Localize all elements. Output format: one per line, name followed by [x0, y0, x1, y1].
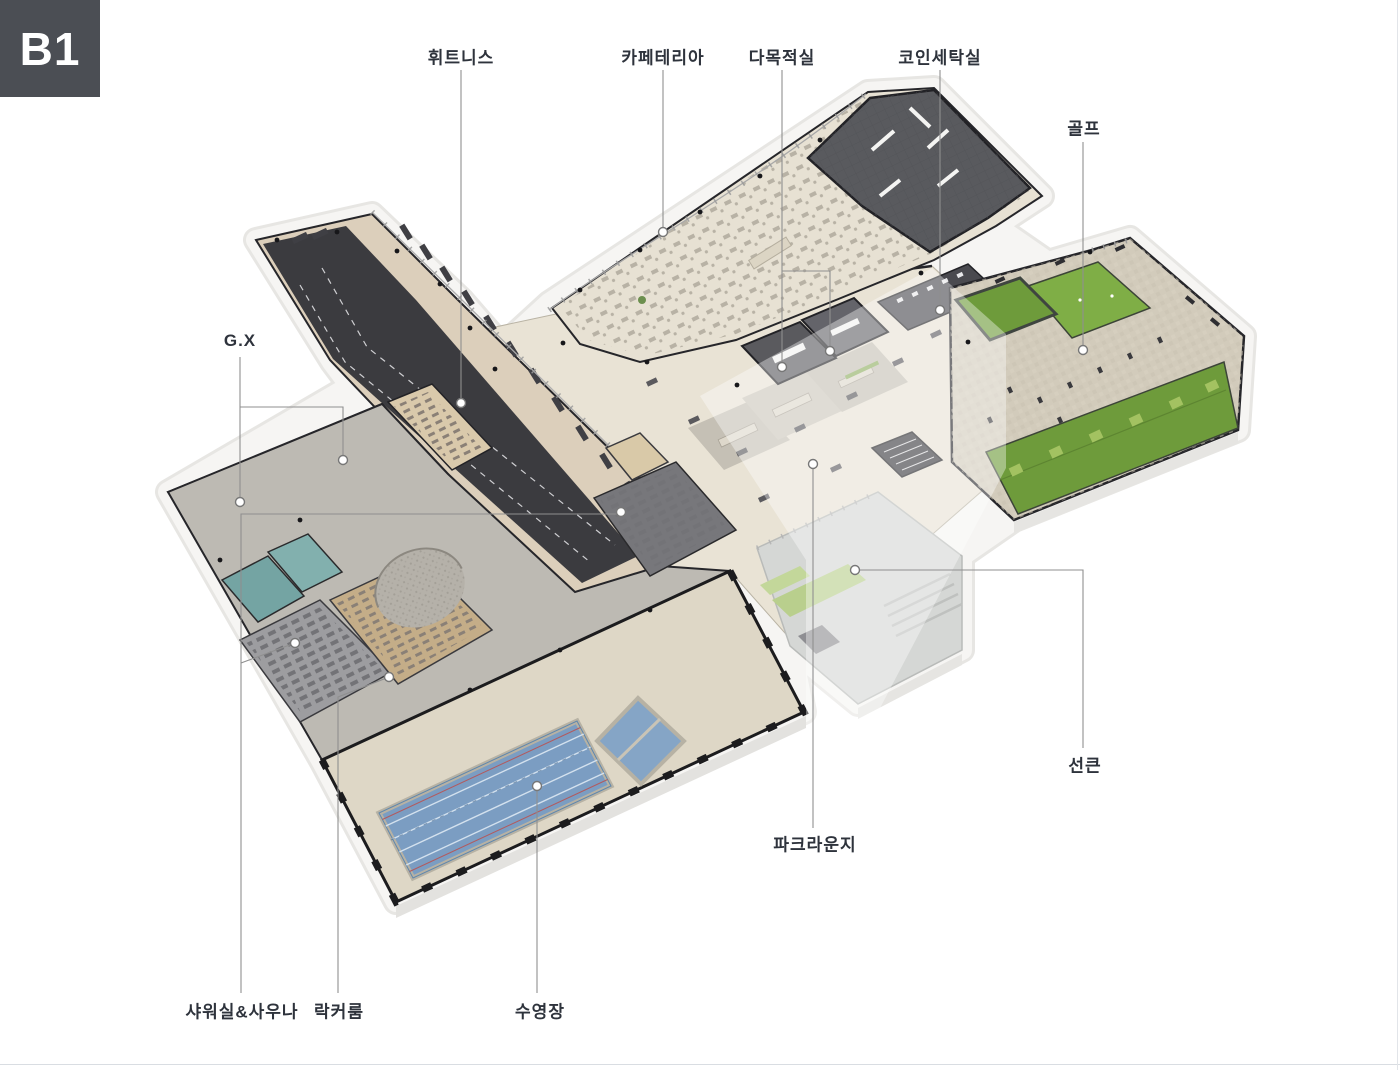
floor-badge: B1 — [0, 0, 100, 97]
page-right-border — [1397, 0, 1398, 1070]
label-coin-laundry: 코인세탁실 — [898, 44, 981, 69]
floorplan-rendering — [0, 0, 1400, 1070]
page-bottom-border — [0, 1064, 1400, 1065]
label-shower-sauna: 샤워실&사우나 — [185, 998, 298, 1023]
label-sunken: 선큰 — [1068, 752, 1101, 777]
label-park-lounge: 파크라운지 — [773, 831, 856, 856]
plant — [638, 296, 646, 304]
label-golf: 골프 — [1067, 115, 1100, 140]
label-cafeteria: 카페테리아 — [621, 44, 704, 69]
label-multipurpose: 다목적실 — [749, 44, 816, 69]
floorplan-stage: 휘트니스 카페테리아 다목적실 코인세탁실 골프 G.X 선큰 파크라운지 샤워… — [0, 0, 1400, 1070]
label-pool: 수영장 — [515, 998, 565, 1023]
label-gx: G.X — [224, 331, 256, 351]
label-locker-room: 락커룸 — [314, 998, 364, 1023]
label-fitness: 휘트니스 — [428, 44, 495, 69]
